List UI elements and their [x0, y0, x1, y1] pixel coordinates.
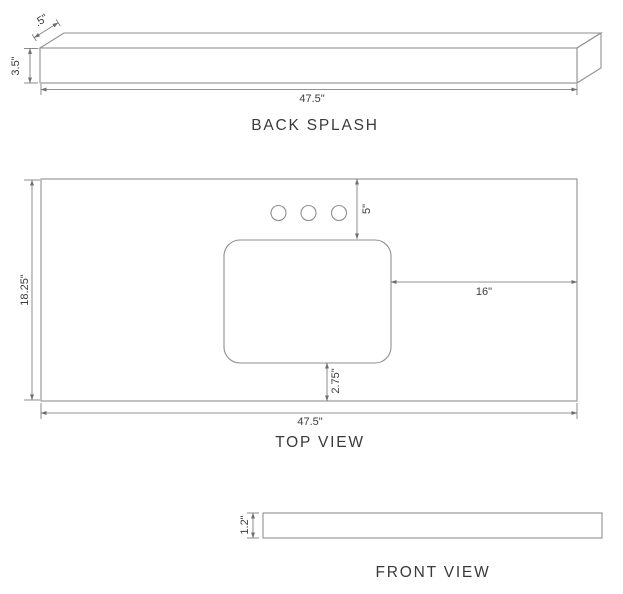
technical-drawing: .5" 3.5" 47.5" BACK SPLASH: [0, 0, 623, 594]
back-splash-view-title: BACK SPLASH: [251, 117, 378, 134]
backsplash-front-face: [40, 48, 577, 83]
backsplash-height-label: 3.5": [10, 56, 22, 75]
backsplash-width-label: 47.5": [299, 93, 324, 105]
topview-depth-dimension: 18.25": [19, 180, 40, 400]
topview-width-dimension: 47.5": [41, 403, 577, 428]
top-view-title: TOP VIEW: [275, 434, 365, 451]
backsplash-depth-label: .5": [33, 12, 51, 29]
topview-sink-to-front-label: 2.75": [330, 368, 342, 393]
topview-back-to-sink-label: 5": [361, 204, 373, 214]
backsplash-width-dimension: 47.5": [41, 84, 577, 105]
top-view: 18.25" 5" 16" 2.75" 47.5" TOP VIEW: [19, 179, 577, 451]
countertop-outline: [41, 179, 577, 401]
frontview-thickness-dimension: 1.2": [239, 513, 259, 538]
frontview-thickness-label: 1.2": [239, 515, 251, 534]
front-slab-outline: [263, 513, 602, 538]
backsplash-depth-dimension: .5": [32, 12, 60, 41]
vanity-top-spec-sheet: .5" 3.5" 47.5" BACK SPLASH: [0, 0, 623, 594]
back-splash-view: .5" 3.5" 47.5" BACK SPLASH: [10, 12, 601, 134]
front-view: 1.2" FRONT VIEW: [239, 513, 602, 581]
topview-depth-label: 18.25": [19, 274, 31, 306]
front-view-title: FRONT VIEW: [375, 564, 490, 581]
backsplash-height-dimension: 3.5": [10, 49, 38, 84]
backsplash-top-face: [40, 33, 601, 48]
topview-width-label: 47.5": [297, 416, 322, 428]
topview-sink-to-right-label: 16": [476, 286, 492, 298]
